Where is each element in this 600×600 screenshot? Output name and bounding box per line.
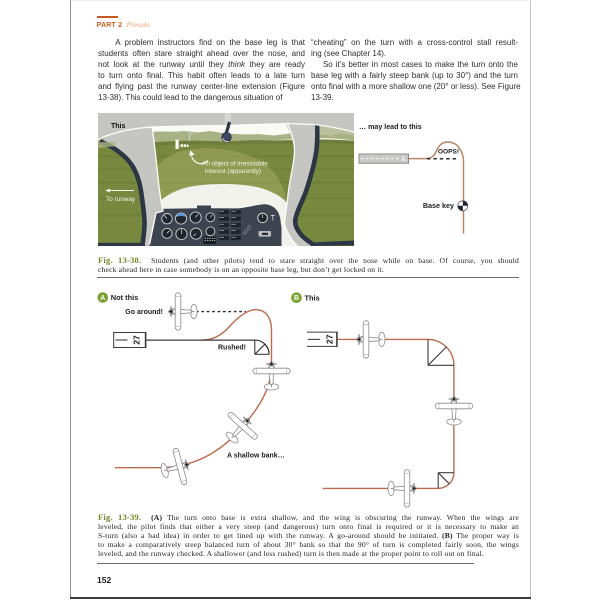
svg-text:27: 27 (132, 335, 142, 345)
svg-text:A: A (100, 295, 105, 302)
svg-text:27: 27 (401, 156, 406, 162)
svg-text:interest (apparently): interest (apparently) (205, 168, 261, 175)
svg-text:Not this: Not this (111, 293, 139, 302)
svg-text:… may lead to this: … may lead to this (359, 123, 422, 131)
svg-text:This: This (111, 123, 125, 130)
svg-text:This: This (305, 293, 320, 302)
svg-text:A shallow bank…: A shallow bank… (227, 453, 285, 460)
svg-text:Go around!: Go around! (125, 309, 163, 316)
svg-text:27: 27 (325, 334, 335, 344)
svg-text:To runway: To runway (106, 196, 136, 203)
svg-text:B: B (294, 295, 299, 302)
svg-text:OOPS!: OOPS! (438, 149, 459, 156)
svg-text:Rushed!: Rushed! (218, 345, 246, 352)
svg-text:Base key: Base key (423, 201, 454, 210)
svg-text:An object of irresistable: An object of irresistable (202, 160, 268, 167)
